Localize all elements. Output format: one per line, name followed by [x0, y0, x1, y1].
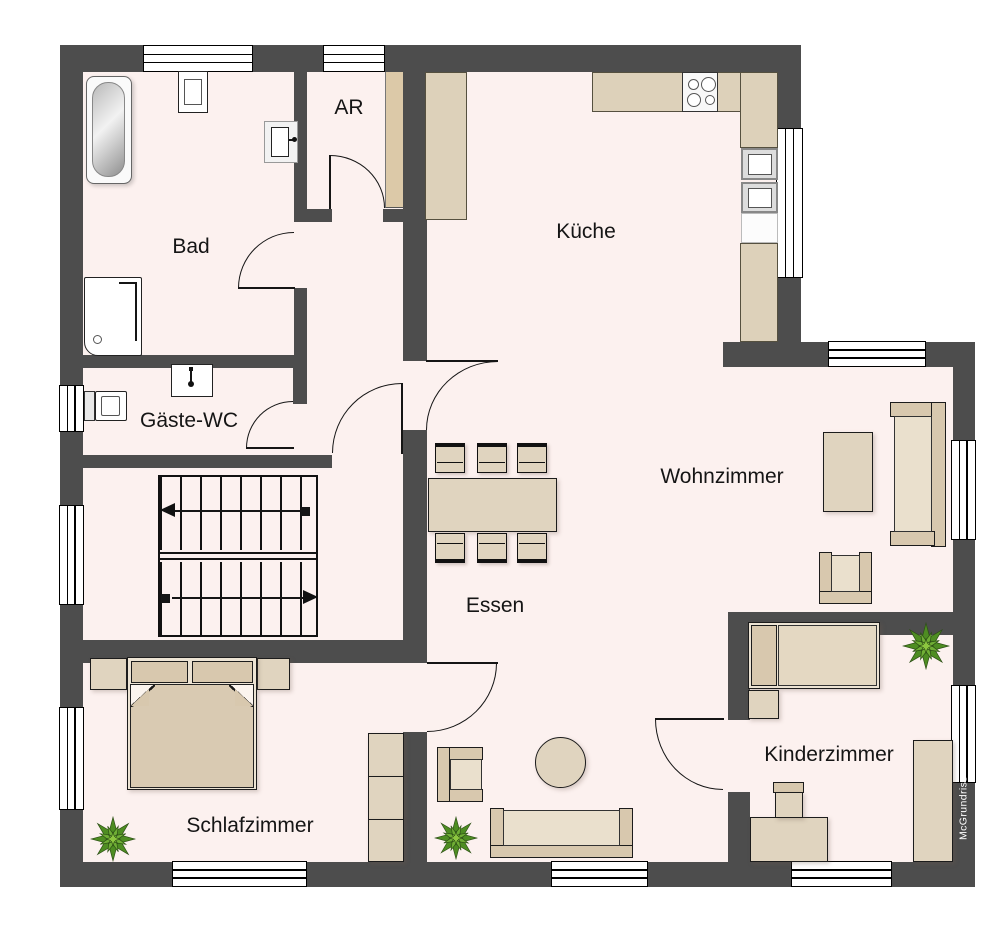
dining-table	[428, 478, 557, 532]
toilet-tank	[84, 391, 95, 421]
window	[59, 505, 84, 605]
nightstand	[90, 658, 127, 690]
window	[828, 341, 926, 367]
mirror-cabinet	[264, 121, 298, 163]
shower-drain	[93, 335, 102, 344]
window	[791, 861, 892, 887]
room-label-gaeste-wc: Gäste-WC	[140, 409, 238, 433]
plant	[434, 816, 478, 860]
window	[776, 128, 803, 278]
window	[951, 685, 976, 783]
side-table-round	[535, 737, 586, 788]
armchair-seat	[450, 759, 482, 790]
armchair-seat	[831, 555, 860, 592]
kitchen-tall-unit	[425, 72, 467, 220]
armchair-back	[819, 591, 872, 604]
sofa-armrest	[890, 531, 935, 546]
wall	[403, 430, 427, 663]
shower-glass	[119, 282, 137, 284]
pillow	[192, 661, 253, 683]
toilet-bowl	[101, 396, 120, 416]
stair-arrow-line	[170, 510, 304, 512]
cooktop	[682, 72, 718, 112]
sofa-armrest	[890, 402, 935, 417]
window	[172, 861, 307, 887]
shower	[84, 277, 142, 356]
wall	[307, 209, 332, 222]
oven-door	[748, 154, 772, 175]
dining-chair	[435, 443, 465, 473]
toilet	[95, 391, 127, 421]
faucet-dot	[188, 381, 194, 387]
cabinet-knob	[292, 137, 297, 142]
room-label-essen: Essen	[466, 594, 524, 618]
room-label-kueche: Küche	[556, 220, 616, 244]
bedside-cabinet	[748, 690, 779, 719]
washbasin-bowl	[184, 79, 202, 105]
sofa-back	[490, 845, 633, 858]
stair-arrow-line	[172, 597, 304, 599]
armchair-armrest	[449, 789, 483, 802]
dining-chair	[517, 443, 547, 473]
dining-chair	[477, 533, 507, 563]
bathtub	[86, 76, 132, 184]
oven	[741, 148, 778, 180]
door-leaf	[329, 155, 331, 209]
wall	[383, 209, 403, 222]
oven	[741, 182, 778, 213]
wardrobe-section	[368, 776, 404, 820]
window	[59, 707, 84, 810]
wc-washbasin	[171, 364, 213, 397]
stair-run-upper	[160, 477, 316, 550]
mattress	[778, 625, 877, 686]
coffee-table	[823, 432, 873, 512]
nightstand	[257, 658, 290, 690]
wall	[293, 362, 307, 404]
pillow	[751, 625, 777, 686]
oven-door	[748, 188, 772, 208]
desk	[750, 817, 828, 862]
wall	[728, 612, 750, 720]
burner	[705, 95, 715, 105]
floorplan-canvas: Bad AR Küche Gäste-WC Wohnzimmer Essen S…	[0, 0, 995, 935]
door-leaf	[401, 383, 403, 454]
wall	[83, 455, 332, 468]
stair-arrow-head	[303, 590, 318, 604]
armchair-armrest	[859, 552, 872, 595]
dining-chair	[435, 533, 465, 563]
window	[951, 440, 976, 540]
door-leaf	[427, 662, 498, 664]
sofa-seat	[894, 416, 932, 532]
wall	[403, 72, 427, 361]
window	[551, 861, 648, 887]
wall	[294, 288, 307, 362]
wardrobe-section	[368, 819, 404, 862]
door-leaf	[655, 718, 724, 720]
shelf	[385, 72, 403, 208]
plant	[90, 816, 136, 862]
stair-arrow-start	[161, 594, 170, 603]
door-leaf	[246, 447, 294, 449]
watermark: McGrundriss	[952, 776, 975, 840]
wall	[403, 732, 427, 862]
stair-landing-line	[160, 552, 316, 554]
room-label-bad: Bad	[172, 235, 209, 259]
kitchen-counter	[740, 72, 778, 148]
desk-chair	[775, 792, 803, 818]
burner	[701, 77, 716, 92]
dining-chair	[517, 533, 547, 563]
shower-glass	[135, 283, 137, 341]
cabinet-door	[271, 127, 289, 157]
room-label-wohnzimmer: Wohnzimmer	[660, 465, 783, 489]
burner	[688, 79, 699, 90]
dishwasher	[741, 213, 778, 243]
bathtub-basin	[92, 82, 125, 177]
door-leaf	[238, 287, 295, 289]
staircase	[158, 475, 318, 637]
room-label-kinderzimmer: Kinderzimmer	[764, 743, 894, 767]
wardrobe	[913, 740, 953, 862]
wardrobe-section	[368, 733, 404, 777]
window	[143, 45, 253, 72]
washbasin	[178, 71, 208, 113]
room-label-schlafzimmer: Schlafzimmer	[186, 814, 313, 838]
wall	[728, 792, 750, 862]
door-leaf	[426, 360, 498, 362]
kitchen-counter	[740, 243, 778, 342]
window	[323, 45, 385, 72]
plant	[902, 622, 950, 670]
room-label-ar: AR	[334, 96, 363, 120]
window	[59, 385, 84, 432]
sofa-seat	[503, 810, 620, 846]
stair-landing-line	[160, 558, 316, 560]
stair-arrow-head	[160, 503, 175, 517]
burner	[687, 93, 701, 107]
pillow	[131, 661, 188, 683]
sofa-back	[931, 402, 946, 547]
dining-chair	[477, 443, 507, 473]
